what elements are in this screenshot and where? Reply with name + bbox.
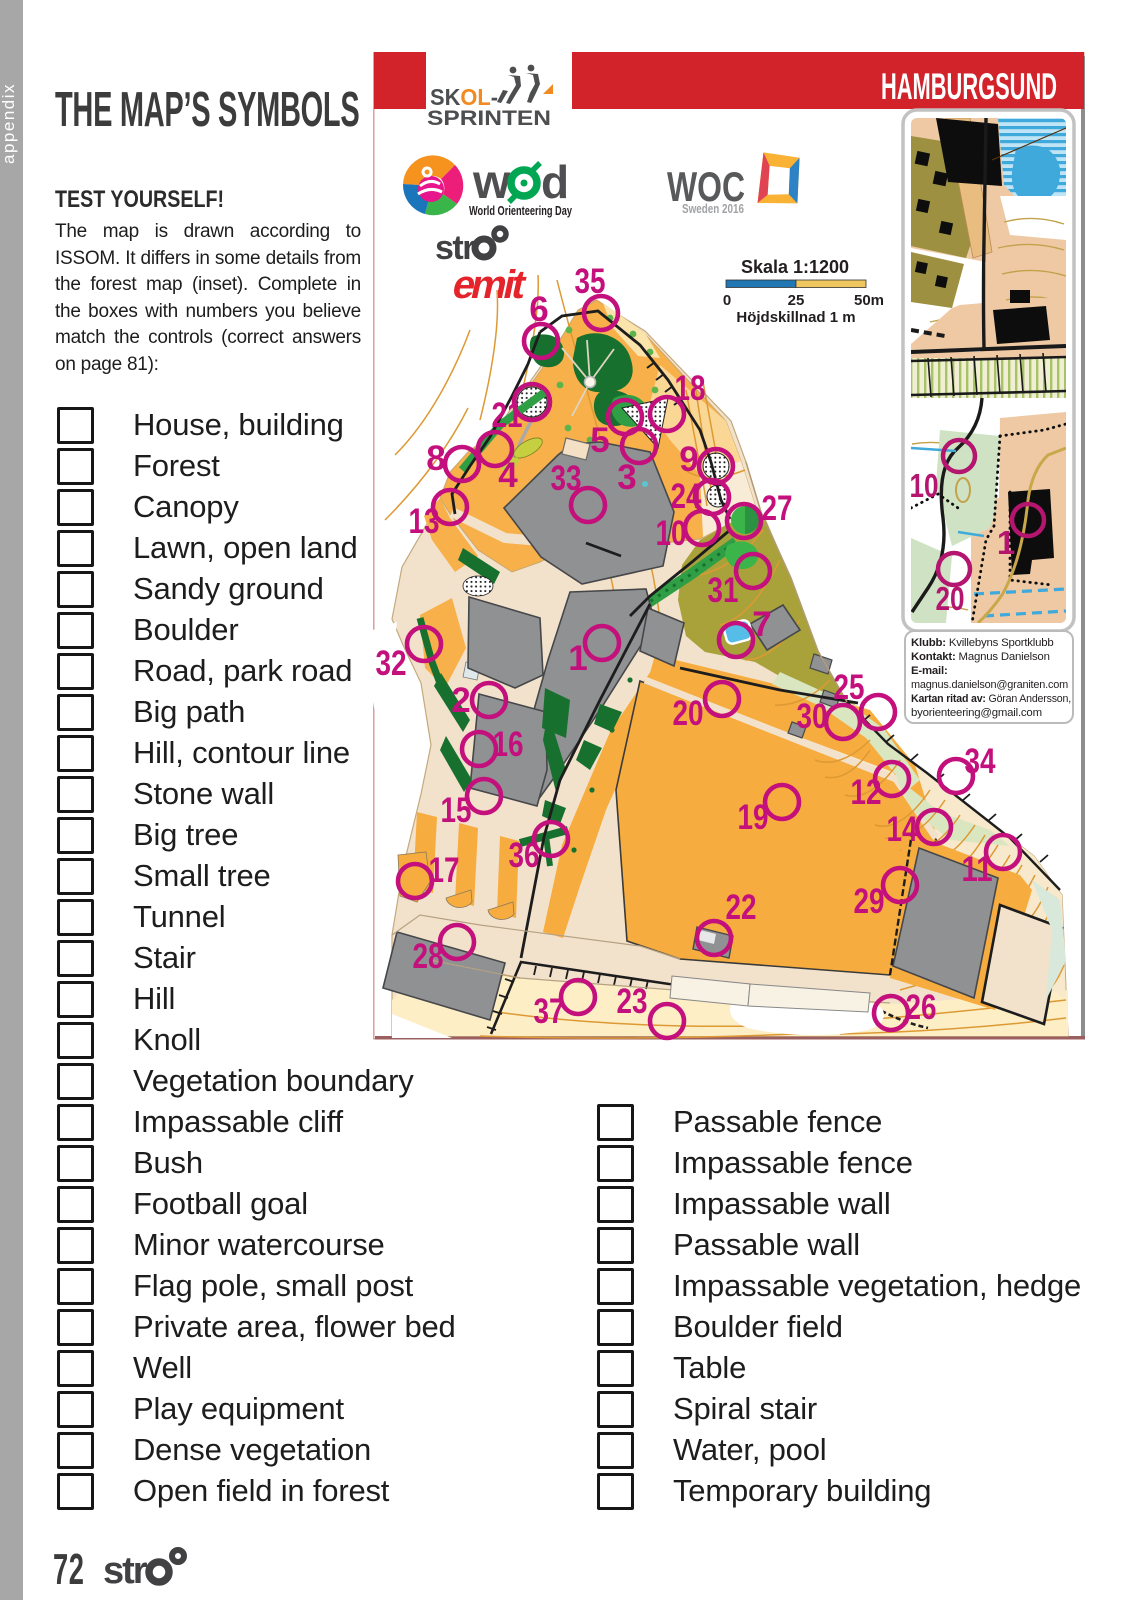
svg-text:5: 5	[590, 421, 609, 460]
svg-text:10: 10	[656, 514, 687, 553]
svg-text:34: 34	[965, 742, 996, 781]
svg-text:35: 35	[575, 262, 606, 301]
svg-text:Kontakt: Magnus Danielson: Kontakt: Magnus Danielson	[911, 651, 1050, 663]
svg-text:29: 29	[854, 882, 885, 921]
svg-text:Höjdskillnad 1 m: Höjdskillnad 1 m	[736, 309, 855, 326]
svg-text:37: 37	[534, 992, 565, 1031]
svg-text:w: w	[472, 156, 511, 209]
svg-text:byorienteering@gmail.com: byorienteering@gmail.com	[911, 707, 1042, 719]
svg-text:E-mail:: E-mail:	[911, 665, 948, 677]
svg-text:Kartan ritad av: Göran Anderss: Kartan ritad av: Göran Andersson,	[911, 693, 1071, 705]
svg-text:24: 24	[671, 477, 702, 516]
svg-text:3: 3	[617, 458, 636, 497]
svg-text:10: 10	[910, 467, 939, 504]
svg-text:1: 1	[997, 524, 1015, 561]
svg-text:2: 2	[451, 681, 470, 720]
svg-text:22: 22	[726, 888, 757, 927]
svg-text:1: 1	[568, 639, 587, 678]
svg-text:HAMBURGSUND: HAMBURGSUND	[881, 66, 1057, 107]
svg-text:20: 20	[673, 694, 704, 733]
svg-text:27: 27	[762, 489, 793, 528]
svg-text:33: 33	[551, 459, 582, 498]
svg-text:9: 9	[679, 440, 698, 479]
svg-text:0: 0	[723, 292, 731, 309]
svg-text:Sweden 2016: Sweden 2016	[682, 201, 744, 216]
svg-text:19: 19	[738, 798, 769, 837]
svg-text:emit: emit	[449, 261, 530, 306]
svg-text:36: 36	[509, 836, 540, 875]
svg-text:d: d	[541, 156, 569, 208]
svg-text:23: 23	[617, 982, 648, 1021]
svg-text:30: 30	[797, 697, 828, 736]
svg-text:20: 20	[936, 580, 965, 617]
svg-text:6: 6	[529, 290, 548, 329]
svg-text:26: 26	[906, 988, 937, 1027]
svg-text:16: 16	[493, 725, 524, 764]
svg-text:25: 25	[834, 668, 865, 707]
svg-text:50m: 50m	[854, 292, 884, 309]
svg-text:str: str	[103, 1550, 148, 1592]
svg-text:12: 12	[851, 773, 882, 812]
svg-text:15: 15	[441, 791, 472, 830]
svg-text:7: 7	[752, 605, 771, 644]
svg-text:SPRINTEN: SPRINTEN	[427, 107, 551, 130]
svg-text:4: 4	[498, 456, 518, 495]
svg-text:32: 32	[376, 644, 407, 683]
svg-text:8: 8	[426, 439, 445, 478]
svg-text:Klubb: Kvillebyns Sportklubb: Klubb: Kvillebyns Sportklubb	[911, 637, 1054, 649]
svg-text:31: 31	[708, 571, 739, 610]
svg-text:13: 13	[409, 502, 440, 541]
svg-text:magnus.danielson@graniten.com: magnus.danielson@graniten.com	[911, 679, 1068, 691]
svg-text:21: 21	[492, 396, 523, 435]
svg-text:18: 18	[675, 369, 706, 408]
svg-text:28: 28	[413, 937, 444, 976]
svg-text:14: 14	[887, 810, 918, 849]
svg-text:Skala 1:1200: Skala 1:1200	[741, 257, 849, 277]
svg-text:World Orienteering Day: World Orienteering Day	[469, 203, 573, 218]
svg-text:25: 25	[788, 292, 805, 309]
svg-text:17: 17	[429, 851, 460, 890]
svg-text:11: 11	[962, 850, 993, 889]
